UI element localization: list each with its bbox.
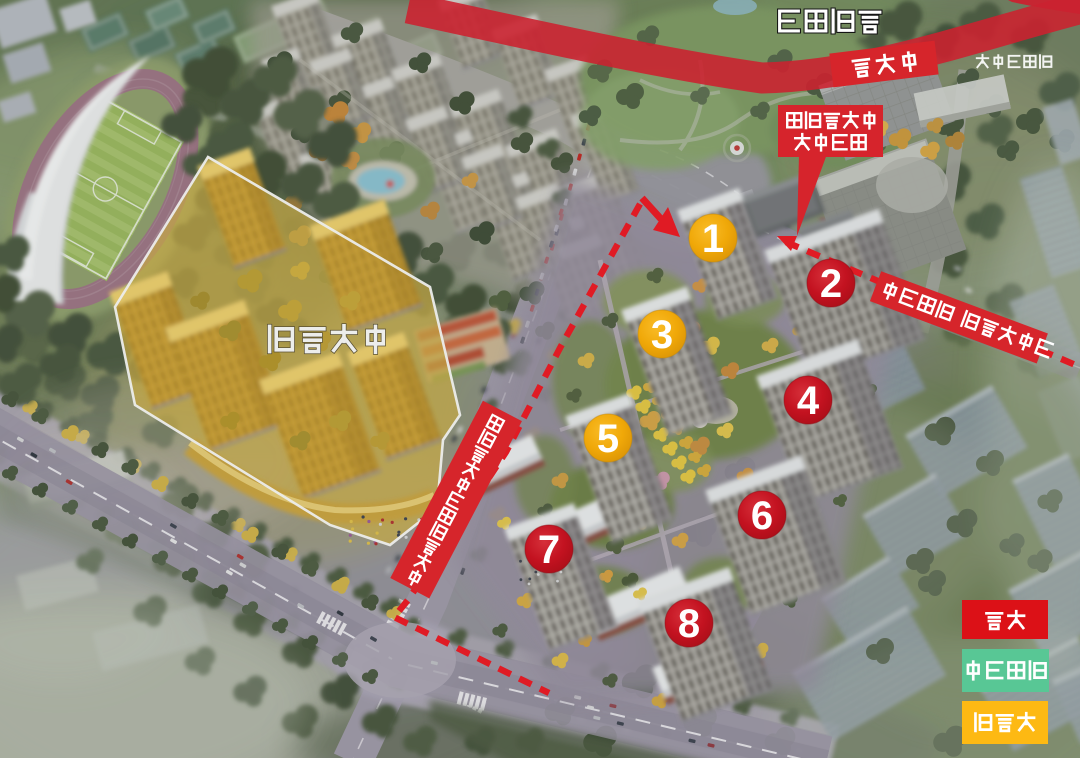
svg-text:6: 6 <box>751 494 773 538</box>
svg-text:2: 2 <box>820 262 842 306</box>
svg-text:1: 1 <box>702 217 724 261</box>
svg-text:4: 4 <box>797 379 820 423</box>
svg-text:3: 3 <box>651 313 673 357</box>
svg-text:5: 5 <box>597 417 619 461</box>
svg-text:7: 7 <box>538 528 560 572</box>
svg-text:8: 8 <box>678 602 700 646</box>
